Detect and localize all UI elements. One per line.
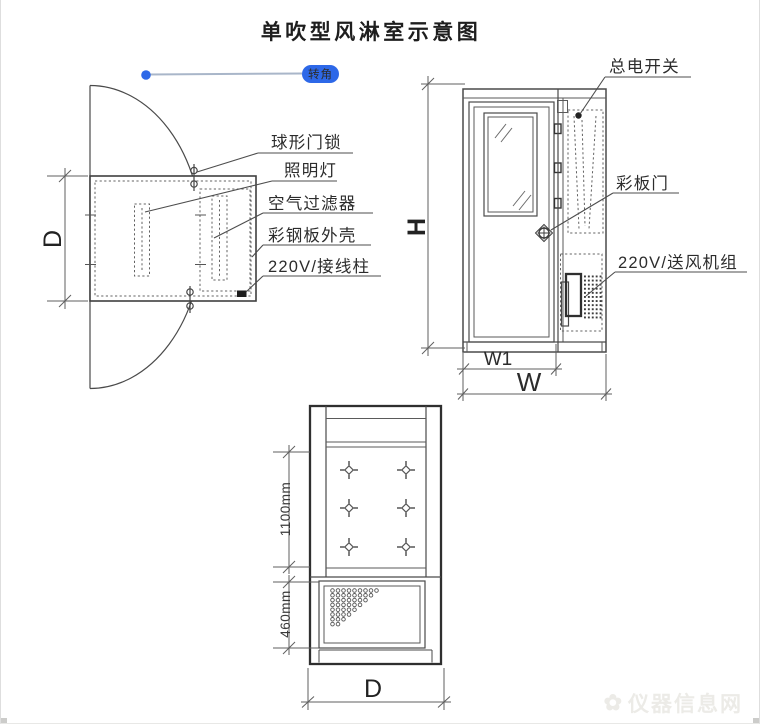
schematic-drawing: D 球形门锁 照明灯 空气过滤器 彩钢板外壳 220V/接线柱 [1,0,760,724]
side-outline [310,406,441,664]
angle-annotation: 转角 [141,65,339,83]
chamber-outline [90,176,256,301]
dim-label-1100mm: 1100mm [278,482,293,537]
callout-terminal: 220V/接线柱 [268,257,370,276]
bottom-left-mark [1,718,7,723]
schematic-page: 单吹型风淋室示意图 [0,0,760,724]
callout-fan-unit: 220V/送风机组 [618,253,738,272]
annotation-line [148,74,302,75]
dimension-fan-section: 460mm [273,575,319,655]
dimension-depth-side: D [301,668,451,710]
cable-duct [568,110,603,233]
dim-label-W: W [517,367,542,397]
callout-panel-door: 彩板门 [616,174,669,193]
dimension-width: W [457,354,612,401]
return-air-grille [319,581,425,648]
dimension-height: H [403,76,465,356]
door-window [484,113,537,216]
annotation-label: 转角 [308,67,333,81]
perforation-holes [331,589,379,626]
dimension-nozzle-section: 1100mm [273,445,310,574]
dim-label-W1: W1 [484,349,513,370]
callout-lamp: 照明灯 [284,161,337,180]
terminal-block [237,291,247,298]
dim-label-H: H [403,218,431,236]
callout-steel-shell: 彩钢板外壳 [268,226,357,245]
watermark: ✿ 仪器信息网 [604,688,743,718]
dim-label-D-plan: D [39,230,67,248]
annotation-pill-button[interactable]: 转角 [302,65,339,83]
base-plinth [319,650,432,663]
front-view: H W1 W 总电开关 [403,57,747,401]
dimension-depth-plan: D [39,168,88,309]
plan-view: D 球形门锁 照明灯 空气过滤器 彩钢板外壳 220V/接线柱 [39,86,381,389]
callout-door-lock: 球形门锁 [271,133,342,152]
side-view: 1100mm 460mm D [273,406,451,710]
door-knob [536,225,553,242]
front-callouts: 总电开关 彩板门 220V/送风机组 [551,57,747,296]
air-nozzles [340,461,415,556]
dim-label-460mm: 460mm [278,590,293,638]
fan-dot-grid [584,276,602,319]
fan-unit [561,254,603,331]
cabin-door [469,102,554,342]
callout-air-filter: 空气过滤器 [268,194,357,213]
watermark-logo-icon: ✿ [604,690,624,716]
watermark-text: 仪器信息网 [628,688,743,718]
dim-label-D-side: D [364,675,382,703]
annotation-handle-dot[interactable] [141,70,151,80]
bottom-right-mark [753,718,759,723]
callout-main-switch: 总电开关 [609,57,680,76]
